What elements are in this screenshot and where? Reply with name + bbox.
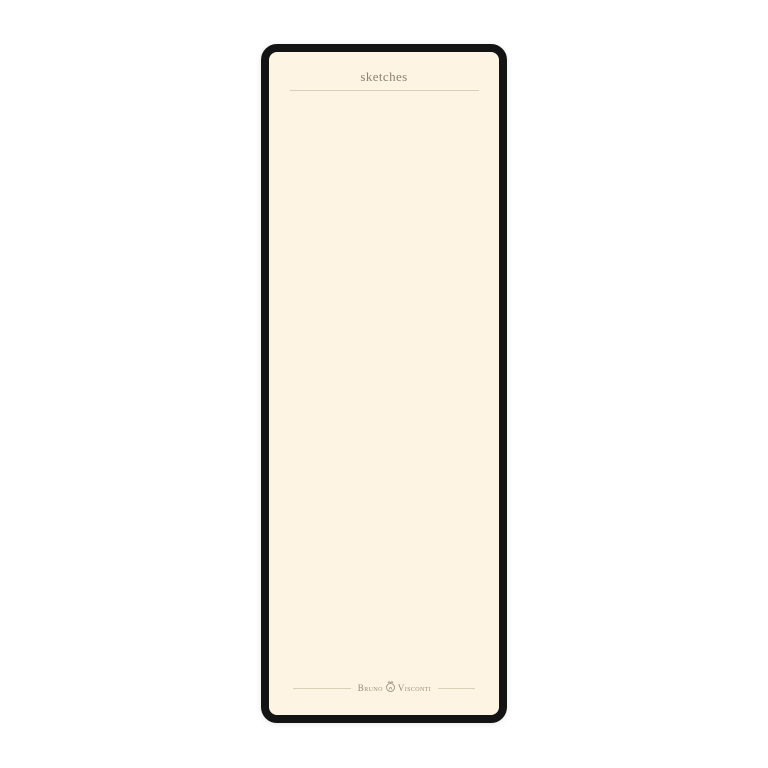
product-stage: sketches Bruno Visconti [0,0,768,768]
notepad-title: sketches [360,70,407,84]
blank-paper-area [269,91,499,683]
notepad-header: sketches [269,70,499,91]
footer-right-line [438,688,475,689]
brand-name-right: Visconti [398,683,431,693]
brand-logo: Bruno Visconti [358,683,431,693]
brand-name-left: Bruno [358,683,383,693]
sketch-notepad: sketches Bruno Visconti [261,44,507,723]
crown-monogram-icon [385,680,396,693]
footer-left-line [293,688,351,689]
notepad-footer: Bruno Visconti [269,683,499,693]
